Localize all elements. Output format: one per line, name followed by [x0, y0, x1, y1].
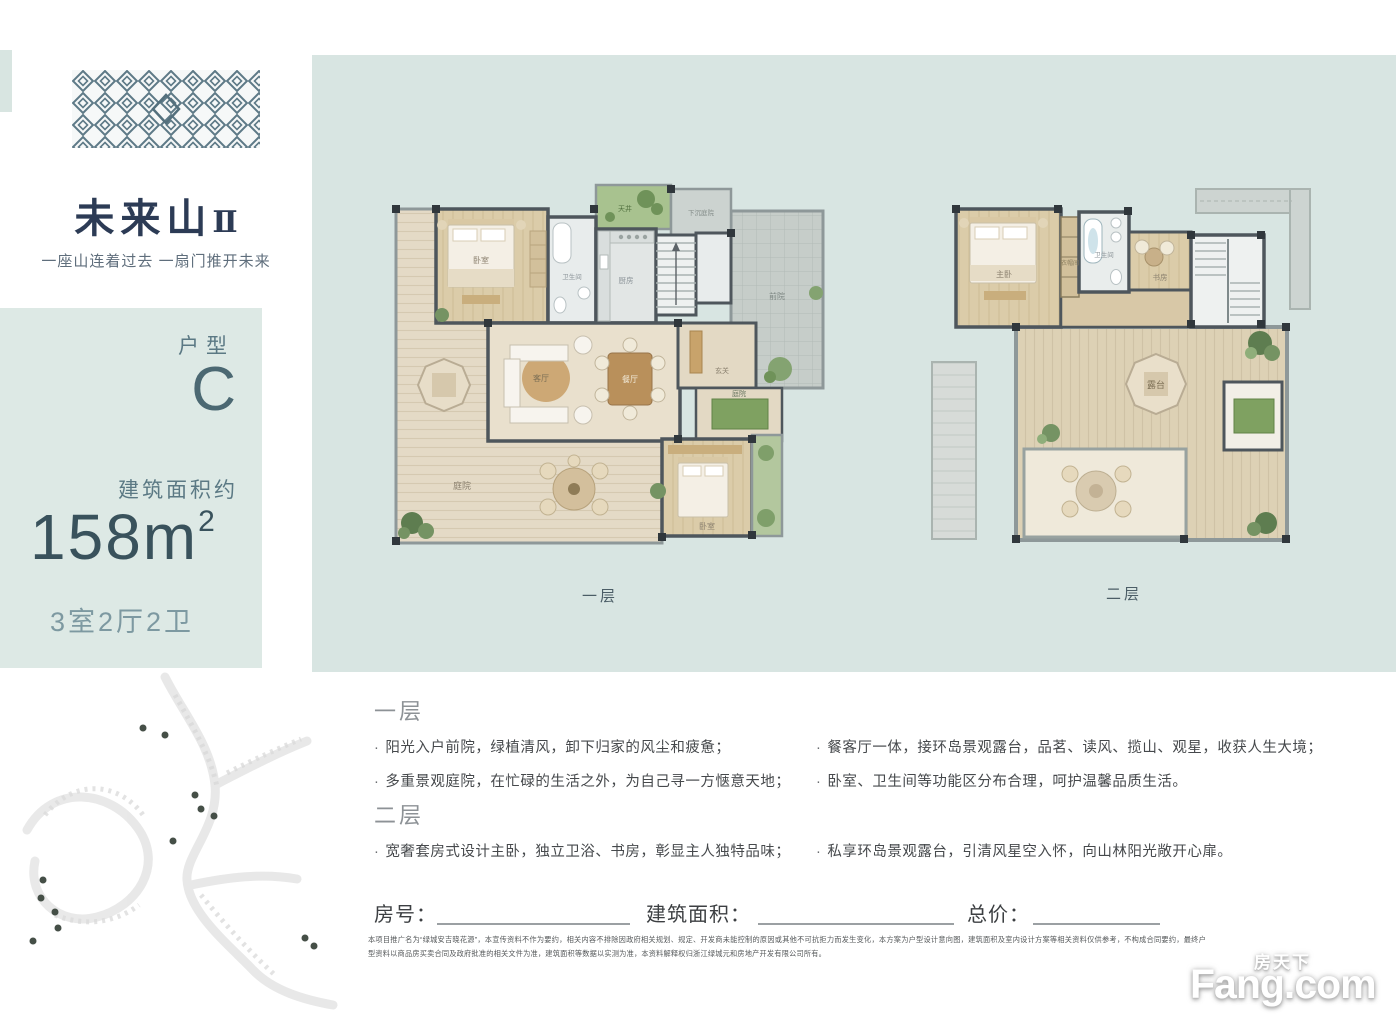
room-label-bath2: 卫生间 [1094, 250, 1114, 259]
flyer-page: 未来山Ⅱ 一座山连着过去 一扇门推开未来 户型 C 建筑面积约 158m2 3室… [0, 0, 1400, 1031]
floor1-features-left: ·阳光入户前院，绿植清风，卸下归家的风尘和疲惫； ·多重景观庭院，在忙碌的生活之… [374, 736, 814, 804]
feature-item: ·私享环岛景观露台，引清风星空入怀，向山林阳光敞开心扉。 [816, 840, 1396, 861]
bullet-dot: · [816, 740, 821, 756]
floorplan-first-floor: 卧室 卫生间 厨房 天井 下沉庭院 前院 客厅 餐厅 玄关 庭院 卧室 庭院 [378, 173, 832, 573]
fang-watermark-logo: 房天下 Fang.com [1190, 948, 1395, 1026]
floor1-features-heading: 一层 [374, 694, 424, 726]
brand-name-text: 未来山 [74, 195, 212, 242]
room-label-bedroom2: 卧室 [699, 521, 715, 531]
floor2-caption: 二层 [1084, 583, 1164, 604]
room-label-courtyard: 庭院 [732, 389, 746, 398]
room-number-label: 房号： [374, 898, 437, 927]
bullet-dot: · [816, 774, 821, 790]
disclaimer-text: 本项目推广名为“绿城安吉晓花源”，本宣传资料不作为要约，相关内容不排除因政府相关… [368, 933, 1206, 960]
room-label-study: 书房 [1153, 272, 1168, 282]
feature-item: ·卧室、卫生间等功能区分布合理，呵护温馨品质生活。 [816, 770, 1396, 791]
unit-rooms-summary: 3室2厅2卫 [50, 600, 194, 639]
floor2-features-heading: 二层 [374, 798, 424, 830]
fang-watermark-en: Fang.com [1190, 961, 1376, 1008]
bullet-dot: · [374, 774, 379, 790]
room-label-dining: 餐厅 [622, 375, 638, 384]
spec-panel: 户型 C 建筑面积约 158m2 3室2厅2卫 [0, 308, 262, 668]
feature-text: 卧室、卫生间等功能区分布合理，呵护温馨品质生活。 [827, 774, 1187, 790]
room-label-front-yard: 前院 [769, 291, 785, 301]
feature-text: 阳光入户前院，绿植清风，卸下归家的风尘和疲惫； [385, 740, 730, 756]
room-label-closet: 衣帽间 [1061, 259, 1079, 267]
total-price-label: 总价： [967, 898, 1030, 927]
room-label-bedroom: 卧室 [473, 255, 489, 265]
room-label-entry: 玄关 [715, 366, 729, 375]
floor1-features-right: ·餐客厅一体，接环岛景观露台，品茗、读风、揽山、观星，收获人生大境； ·卧室、卫… [816, 736, 1396, 804]
room-label-master: 主卧 [996, 269, 1012, 279]
total-price-blank [1033, 923, 1160, 925]
building-area-label: 建筑面积： [646, 898, 751, 927]
brand-name: 未来山Ⅱ [0, 186, 312, 244]
room-label-bath: 卫生间 [562, 272, 582, 281]
floor2-features-right: ·私享环岛景观露台，引清风星空入怀，向山林阳光敞开心扉。 [816, 840, 1396, 874]
bullet-dot: · [374, 740, 379, 756]
unit-area-sup: 2 [198, 505, 215, 538]
feature-item: ·多重景观庭院，在忙碌的生活之外，为自己寻一方惬意天地； [374, 770, 814, 791]
floorplan-second-floor: 主卧 衣帽间 卫生间 书房 露台 [904, 177, 1356, 569]
bullet-dot: · [816, 844, 821, 860]
unit-area-value: 158m2 [30, 500, 215, 574]
room-number-blank [437, 923, 630, 925]
room-label-roof-terrace: 露台 [1147, 379, 1165, 390]
accent-strip [0, 50, 12, 112]
floorplan-panel: 卧室 卫生间 厨房 天井 下沉庭院 前院 客厅 餐厅 玄关 庭院 卧室 庭院 一… [312, 55, 1396, 672]
feature-text: 多重景观庭院，在忙碌的生活之外，为自己寻一方惬意天地； [385, 774, 790, 790]
unit-type-value: C [191, 354, 236, 425]
room-label-living: 客厅 [533, 373, 549, 383]
feature-item: ·餐客厅一体，接环岛景观露台，品茗、读风、揽山、观星，收获人生大境； [816, 736, 1396, 757]
feature-item: ·宽奢套房式设计主卧，独立卫浴、书房，彰显主人独特品味； [374, 840, 814, 861]
floor2-features-left: ·宽奢套房式设计主卧，独立卫浴、书房，彰显主人独特品味； [374, 840, 814, 874]
unit-area-number: 158m [30, 501, 198, 573]
floor1-caption: 一层 [560, 585, 640, 606]
bullet-dot: · [374, 844, 379, 860]
brand-pattern-logo [72, 70, 260, 148]
brand-tagline: 一座山连着过去 一扇门推开未来 [0, 250, 312, 271]
brand-name-suffix: Ⅱ [212, 205, 237, 240]
room-label-patio: 天井 [618, 204, 632, 213]
site-sketch [15, 665, 345, 1020]
room-label-terrace: 庭院 [453, 480, 471, 491]
feature-item: ·阳光入户前院，绿植清风，卸下归家的风尘和疲惫； [374, 736, 814, 757]
room-label-sunken-patio: 下沉庭院 [688, 208, 715, 217]
feature-text: 餐客厅一体，接环岛景观露台，品茗、读风、揽山、观星，收获人生大境； [827, 740, 1322, 756]
room-label-kitchen: 厨房 [619, 275, 634, 285]
feature-text: 宽奢套房式设计主卧，独立卫浴、书房，彰显主人独特品味； [385, 844, 790, 860]
building-area-blank [758, 923, 954, 925]
feature-text: 私享环岛景观露台，引清风星空入怀，向山林阳光敞开心扉。 [827, 844, 1232, 860]
